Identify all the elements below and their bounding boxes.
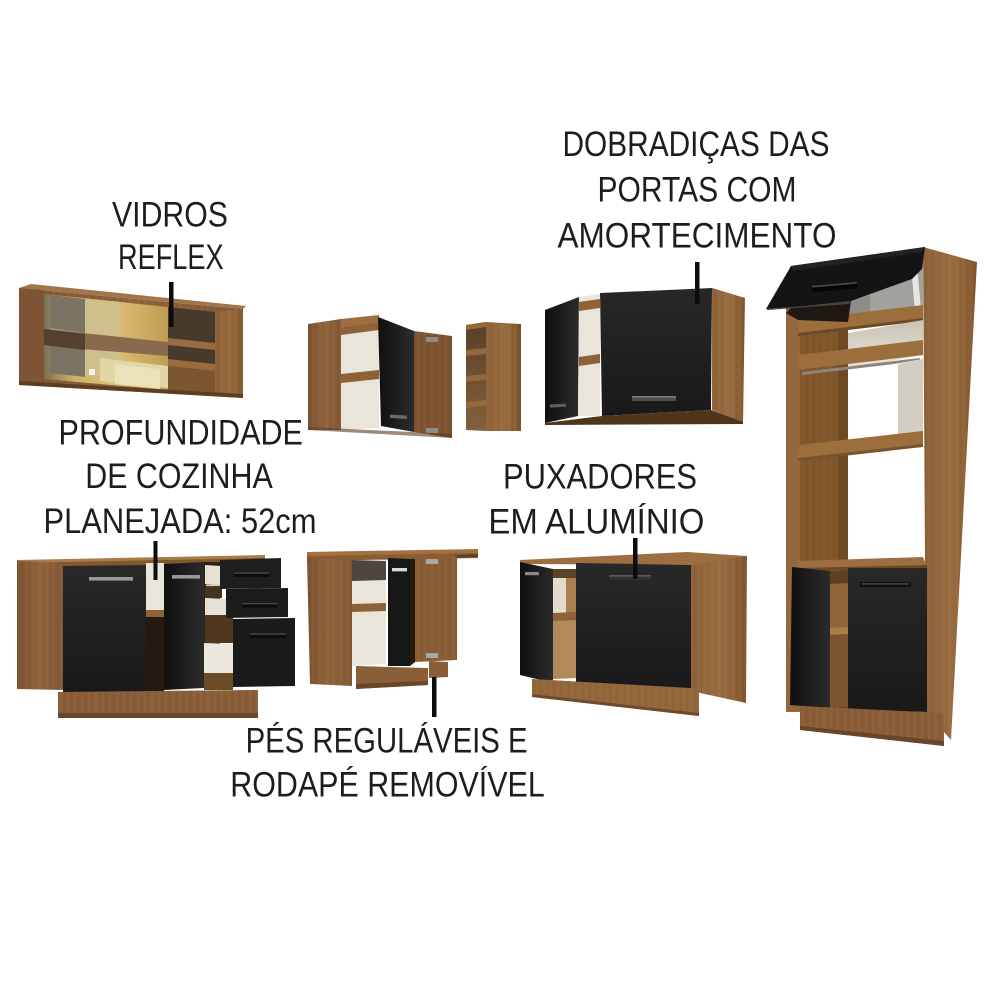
svg-text:PUXADORES: PUXADORES — [503, 457, 697, 496]
svg-text:EM ALUMÍNIO: EM ALUMÍNIO — [488, 503, 704, 542]
svg-text:AMORTECIMENTO: AMORTECIMENTO — [558, 217, 837, 256]
svg-text:VIDROS: VIDROS — [112, 196, 228, 235]
svg-text:PORTAS COM: PORTAS COM — [598, 170, 797, 209]
svg-text:RODAPÉ REMOVÍVEL: RODAPÉ REMOVÍVEL — [230, 766, 545, 805]
svg-text:REFLEX: REFLEX — [118, 238, 224, 277]
svg-text:DOBRADIÇAS DAS: DOBRADIÇAS DAS — [563, 125, 830, 164]
svg-text:PROFUNDIDADE: PROFUNDIDADE — [58, 414, 303, 453]
svg-text:PLANEJADA: 52cm: PLANEJADA: 52cm — [44, 502, 317, 541]
svg-text:PÉS REGULÁVEIS E: PÉS REGULÁVEIS E — [246, 722, 528, 761]
svg-text:DE COZINHA: DE COZINHA — [85, 457, 273, 496]
